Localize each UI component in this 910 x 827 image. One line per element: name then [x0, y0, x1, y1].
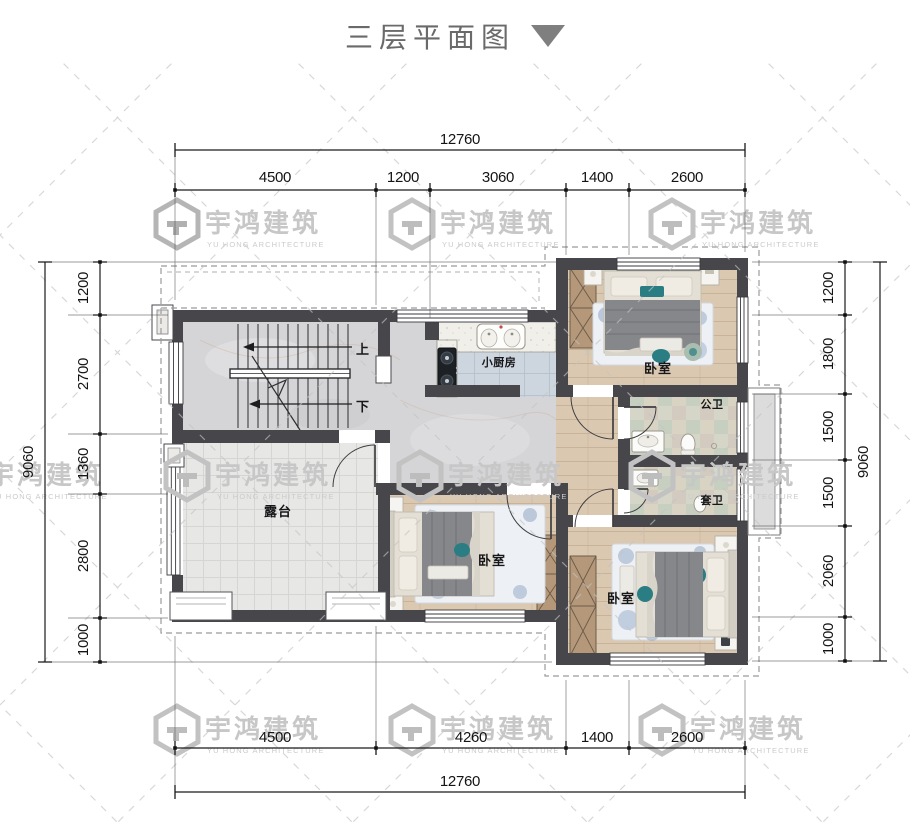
dim-left-total: 9060 [20, 446, 37, 478]
dim-bottom-total: 12760 [440, 773, 480, 790]
dim-label: 1500 [820, 477, 837, 509]
bed-top [584, 262, 719, 365]
dim-label: 1360 [75, 448, 92, 480]
dim-label: 2060 [820, 555, 837, 587]
watermark-subtext: YU HONG ARCHITECTURE [207, 746, 324, 755]
watermark-text: 宇鸿建筑 [440, 208, 556, 238]
floorplan-drawing: 宇鸿建筑 YU HONG ARCHITECTURE 宇鸿建筑 YU HONG A… [0, 0, 910, 827]
watermark-subtext: YU HONG ARCHITECTURE [207, 240, 324, 249]
room-label-bedroom-middle: 卧室 [478, 553, 506, 568]
watermark: 宇鸿建筑 YU HONG ARCHITECTURE [651, 200, 819, 249]
watermark-subtext: YU HONG ARCHITECTURE [0, 492, 107, 501]
page-title: 三层平面图 [345, 16, 515, 56]
room-label-kitchen: 小厨房 [481, 355, 517, 369]
chevron-down-icon[interactable] [531, 25, 565, 47]
watermark-subtext: YU HONG ARCHITECTURE [217, 492, 334, 501]
room-label-bath-public: 公卫 [701, 398, 724, 411]
dim-label: 2600 [671, 169, 703, 186]
dim-label: 1000 [820, 623, 837, 655]
dim-label: 2800 [75, 540, 92, 572]
watermark-text: 宇鸿建筑 [680, 460, 796, 490]
dim-label: 4260 [455, 729, 487, 746]
dim-label: 1400 [581, 169, 613, 186]
dim-label: 2600 [671, 729, 703, 746]
dim-label: 2700 [75, 358, 92, 390]
watermark-text: 宇鸿建筑 [205, 208, 321, 238]
room-label-bath-ensuite: 套卫 [701, 493, 724, 507]
watermark-subtext: YU HONG ARCHITECTURE [442, 240, 559, 249]
dim-label: 4500 [259, 729, 291, 746]
dim-label: 1400 [581, 729, 613, 746]
watermark-subtext: YU HONG ARCHITECTURE [702, 240, 819, 249]
watermark: 宇鸿建筑 YU HONG ARCHITECTURE [156, 200, 324, 249]
watermark-text: 宇鸿建筑 [215, 460, 331, 490]
watermark-text: 宇鸿建筑 [448, 460, 564, 490]
dim-label: 1000 [75, 624, 92, 656]
watermark-text: 宇鸿建筑 [690, 714, 806, 744]
dim-label: 4500 [259, 169, 291, 186]
dim-label: 1500 [820, 411, 837, 443]
watermark-text: 宇鸿建筑 [700, 208, 816, 238]
dim-label: 1800 [820, 338, 837, 370]
dim-label: 1200 [820, 272, 837, 304]
dim-label: 1200 [75, 272, 92, 304]
floorplan-page: 三层平面图 [0, 0, 910, 827]
stairs-down-label: 下 [356, 399, 370, 414]
drawing-header: 三层平面图 [0, 16, 910, 56]
stairs-up-label: 上 [356, 342, 370, 357]
room-label-terrace: 露台 [264, 504, 292, 519]
dim-label: 1200 [387, 169, 419, 186]
room-label-bedroom-bottom: 卧室 [607, 591, 635, 606]
dim-label: 3060 [482, 169, 514, 186]
watermark: 宇鸿建筑 YU HONG ARCHITECTURE [391, 200, 559, 249]
watermark-subtext: YU HONG ARCHITECTURE [442, 746, 559, 755]
room-label-bedroom-top: 卧室 [644, 361, 672, 376]
dim-right-total: 9060 [855, 446, 872, 478]
dim-top-total: 12760 [440, 131, 480, 148]
bed-middle [383, 497, 545, 612]
watermark-subtext: YU HONG ARCHITECTURE [692, 746, 809, 755]
watermark-subtext: YU HONG ARCHITECTURE [450, 492, 567, 501]
